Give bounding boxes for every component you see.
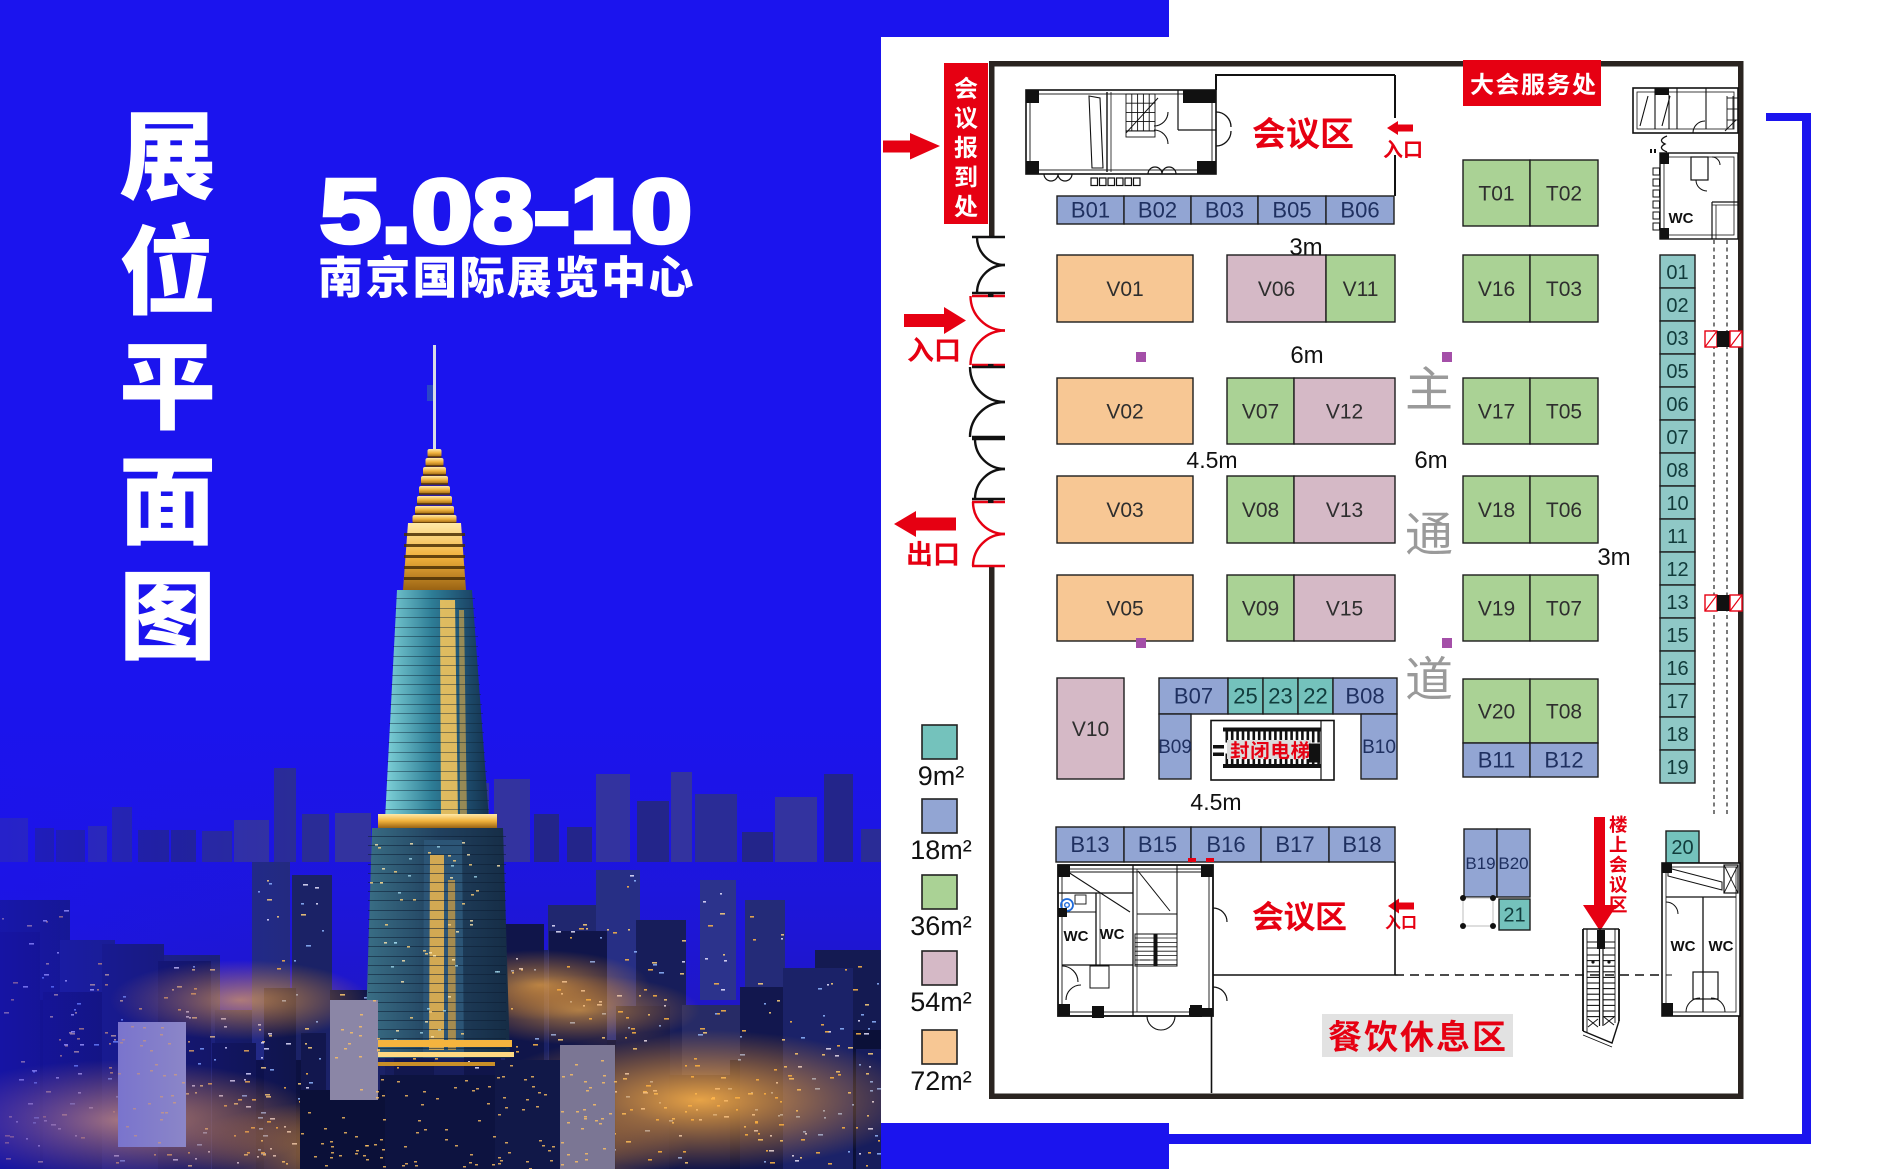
svg-text:19: 19 — [1666, 757, 1688, 779]
svg-text:V15: V15 — [1326, 597, 1363, 620]
svg-text:23: 23 — [1268, 684, 1292, 709]
svg-text:02: 02 — [1666, 295, 1688, 317]
svg-text:B17: B17 — [1275, 832, 1314, 857]
svg-text:V13: V13 — [1326, 499, 1363, 522]
svg-text:B10: B10 — [1362, 737, 1396, 758]
svg-text:V18: V18 — [1478, 499, 1515, 522]
svg-text:V09: V09 — [1242, 597, 1279, 620]
svg-text:07: 07 — [1666, 427, 1688, 449]
svg-text:36m²: 36m² — [910, 911, 972, 941]
svg-text:B01: B01 — [1071, 198, 1110, 223]
svg-text:13: 13 — [1666, 592, 1688, 614]
svg-text:V20: V20 — [1478, 700, 1515, 723]
svg-text:B20: B20 — [1498, 854, 1528, 873]
svg-text:12: 12 — [1666, 559, 1688, 581]
svg-text:T05: T05 — [1546, 400, 1582, 423]
svg-text:08: 08 — [1666, 460, 1688, 482]
svg-text:21: 21 — [1503, 905, 1525, 927]
svg-text:V07: V07 — [1242, 400, 1279, 423]
svg-text:WC: WC — [1064, 928, 1089, 945]
svg-text:54m²: 54m² — [910, 987, 972, 1017]
svg-text:V05: V05 — [1106, 597, 1143, 620]
svg-text:T01: T01 — [1478, 182, 1514, 205]
svg-text:V08: V08 — [1242, 499, 1279, 522]
svg-text:6m: 6m — [1414, 447, 1447, 474]
svg-text:V16: V16 — [1478, 278, 1515, 301]
svg-text:T02: T02 — [1546, 182, 1582, 205]
svg-text:17: 17 — [1666, 691, 1688, 713]
svg-text:V02: V02 — [1106, 400, 1143, 423]
svg-text:V12: V12 — [1326, 400, 1363, 423]
svg-text:B02: B02 — [1138, 198, 1177, 223]
svg-text:B06: B06 — [1340, 198, 1379, 223]
svg-text:15: 15 — [1666, 625, 1688, 647]
svg-text:B16: B16 — [1206, 832, 1245, 857]
svg-text:V03: V03 — [1106, 499, 1143, 522]
svg-text:B18: B18 — [1342, 832, 1381, 857]
svg-text:72m²: 72m² — [910, 1066, 972, 1096]
svg-text:V06: V06 — [1258, 278, 1295, 301]
svg-text:18: 18 — [1666, 724, 1688, 746]
svg-text:3m: 3m — [1597, 544, 1630, 571]
svg-text:B13: B13 — [1070, 832, 1109, 857]
svg-text:T03: T03 — [1546, 278, 1582, 301]
svg-text:4.5m: 4.5m — [1190, 789, 1241, 815]
svg-text:V01: V01 — [1106, 278, 1143, 301]
svg-text:06: 06 — [1666, 394, 1688, 416]
svg-text:V11: V11 — [1343, 278, 1379, 301]
svg-text:WC: WC — [1709, 938, 1734, 955]
svg-text:01: 01 — [1666, 262, 1688, 284]
svg-text:V19: V19 — [1478, 597, 1515, 620]
svg-text:05: 05 — [1666, 361, 1688, 383]
svg-text:9m²: 9m² — [918, 761, 965, 791]
svg-text:B03: B03 — [1205, 198, 1244, 223]
svg-text:22: 22 — [1303, 684, 1327, 709]
svg-text:B07: B07 — [1174, 684, 1213, 709]
svg-text:03: 03 — [1666, 328, 1688, 350]
svg-text:16: 16 — [1666, 658, 1688, 680]
svg-text:10: 10 — [1666, 493, 1688, 515]
svg-text:20: 20 — [1671, 837, 1693, 859]
svg-text:11: 11 — [1667, 526, 1688, 548]
svg-text:5.08-10: 5.08-10 — [320, 162, 692, 262]
svg-text:B08: B08 — [1345, 684, 1384, 709]
svg-text:6m: 6m — [1290, 342, 1323, 369]
svg-text:WC: WC — [1100, 926, 1125, 943]
svg-text:4.5m: 4.5m — [1186, 447, 1237, 473]
svg-text:B12: B12 — [1544, 748, 1583, 773]
svg-text:V17: V17 — [1478, 400, 1515, 423]
svg-text:B15: B15 — [1138, 832, 1177, 857]
svg-text:T06: T06 — [1546, 499, 1582, 522]
svg-text:T08: T08 — [1546, 700, 1582, 723]
svg-text:B19: B19 — [1465, 854, 1495, 873]
svg-text:B05: B05 — [1272, 198, 1311, 223]
svg-text:WC: WC — [1669, 210, 1694, 227]
svg-text:WC: WC — [1671, 938, 1696, 955]
svg-text:25: 25 — [1233, 684, 1257, 709]
svg-text:18m²: 18m² — [910, 835, 972, 865]
svg-text:V10: V10 — [1072, 718, 1109, 741]
svg-text:B09: B09 — [1158, 737, 1192, 758]
svg-text:T07: T07 — [1546, 597, 1582, 620]
svg-text:B11: B11 — [1478, 748, 1516, 773]
